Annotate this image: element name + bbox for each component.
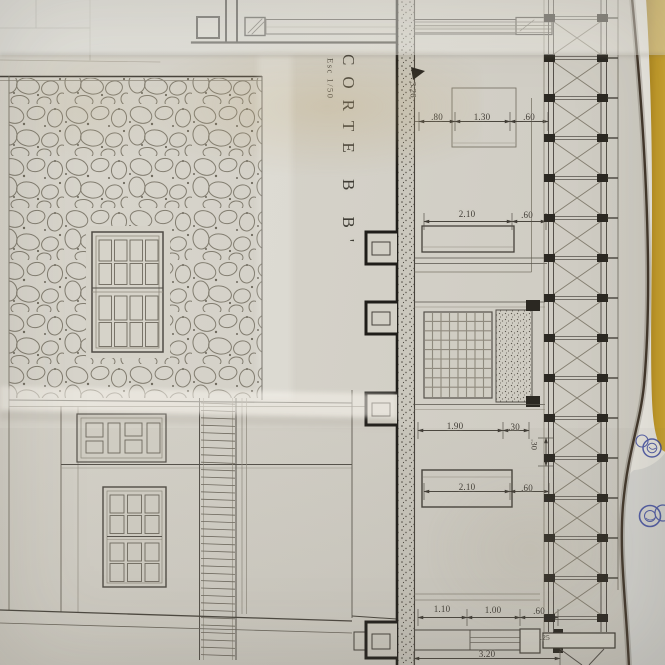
section-drawing bbox=[0, 0, 665, 665]
level-marker bbox=[411, 67, 425, 80]
section-cut-wall bbox=[366, 0, 425, 665]
interior-elevation bbox=[0, 390, 397, 660]
stone-wall-elevation bbox=[0, 76, 352, 610]
stair-hatch bbox=[201, 403, 235, 656]
beam-stubs bbox=[366, 232, 397, 658]
upper-plan-fragment bbox=[0, 0, 552, 62]
photographed-blueprint: CORTE B B' Esc 1/50 3.26 .80 1.30 .60 2.… bbox=[0, 0, 665, 665]
desk-edge bbox=[621, 0, 665, 665]
section-interior bbox=[415, 22, 564, 653]
roof-truss bbox=[543, 0, 618, 665]
